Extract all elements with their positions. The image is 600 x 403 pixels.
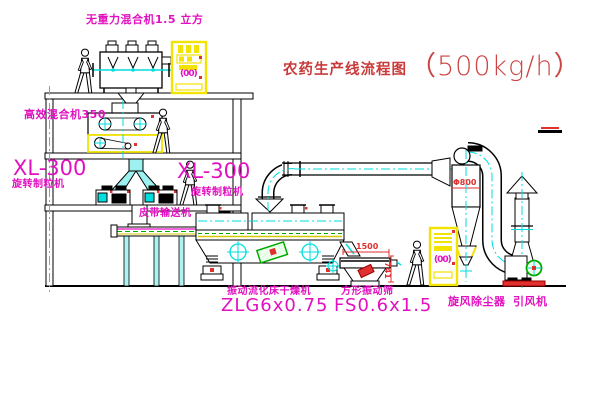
exhaust-duct [256, 161, 452, 214]
fan-drawing [503, 256, 545, 286]
label-xl300-mid: XL-300 [177, 161, 250, 182]
cad-flow-diagram: 农药生产线流程图 （500kg/h） 无重力混合机1.5 立方 高效混合机350… [0, 0, 600, 403]
label-xl300-left: XL-300 [13, 158, 86, 179]
worker-ground [407, 241, 424, 285]
worker-roof [75, 49, 92, 93]
cabinet1-display: (00) [180, 70, 197, 79]
label-gravity-mixer: 无重力混合机1.5 立方 [86, 14, 203, 25]
label-cyclone: 旋风除尘器 [448, 296, 506, 307]
control-cabinet-1 [172, 42, 206, 93]
label-sieve-model: FS0.6x1.5 [334, 297, 432, 315]
label-belt-conveyor: 皮带输送机 [139, 209, 192, 219]
title-chinese: 农药生产线流程图 [283, 58, 407, 79]
title-capacity: （500kg/h） [409, 44, 582, 83]
dim-cyclone-diameter: Φ800 [453, 179, 477, 187]
drawing-title: 农药生产线流程图 （500kg/h） [283, 44, 582, 83]
label-fan: 引风机 [513, 296, 548, 307]
label-high-eff-mixer: 高效混合机350 [24, 109, 106, 120]
dryer-drawing [196, 205, 360, 280]
dim-sieve-height: 741 [383, 262, 391, 279]
dim-sieve-length: 1500 [356, 243, 378, 251]
label-dryer-model: ZLG6x0.75 [221, 297, 329, 315]
label-granulator-left: 旋转制粒机 [12, 180, 65, 190]
cabinet2-display: (00) [434, 256, 451, 265]
label-granulator-mid: 旋转制粒机 [191, 188, 244, 198]
